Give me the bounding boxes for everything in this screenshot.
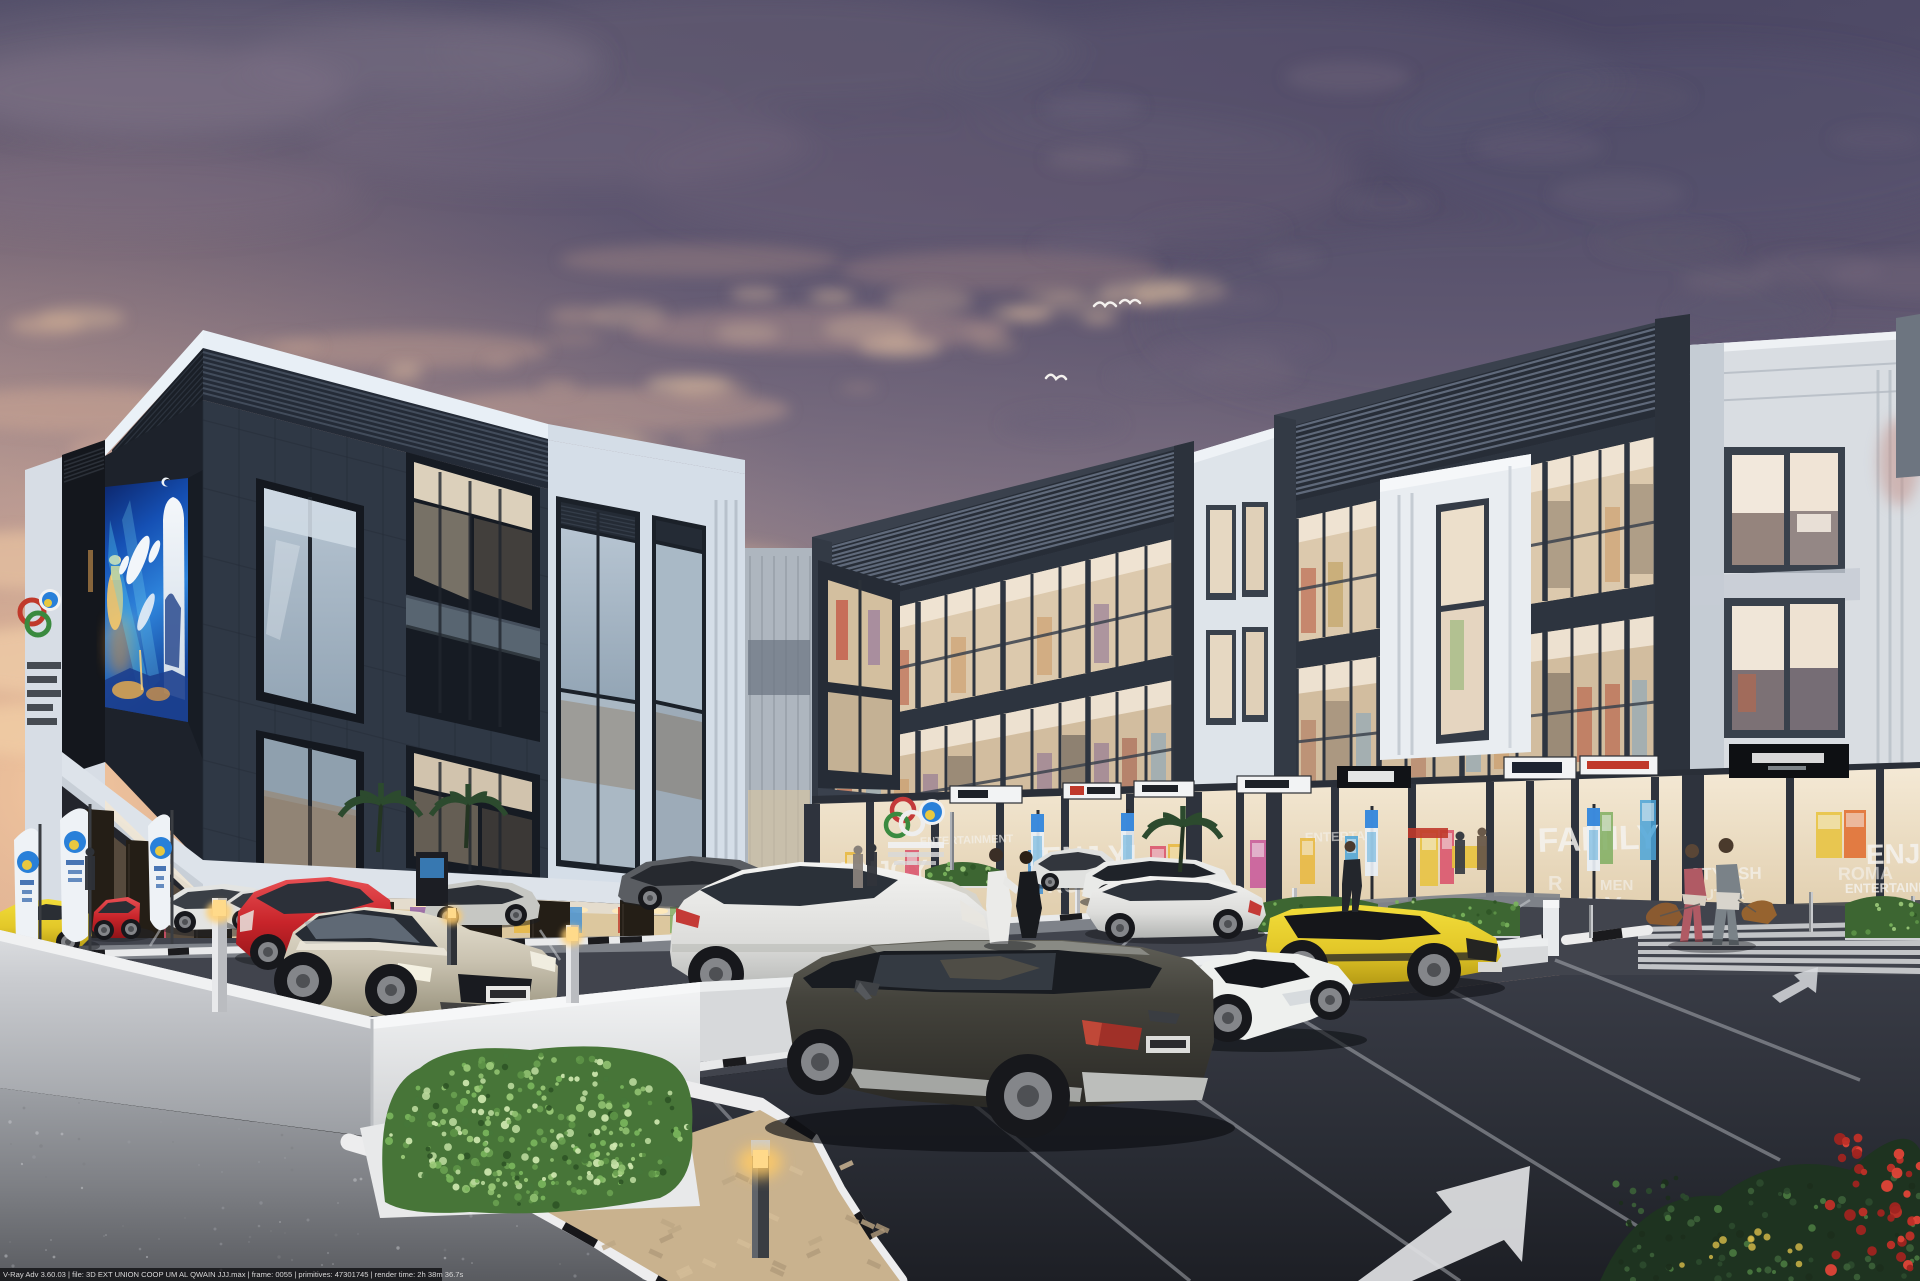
svg-text:V-Ray Adv 3.60.03 | file: 3D E: V-Ray Adv 3.60.03 | file: 3D EXT UNION C… [3,1270,464,1279]
svg-text:ROMA: ROMA [1838,863,1893,884]
